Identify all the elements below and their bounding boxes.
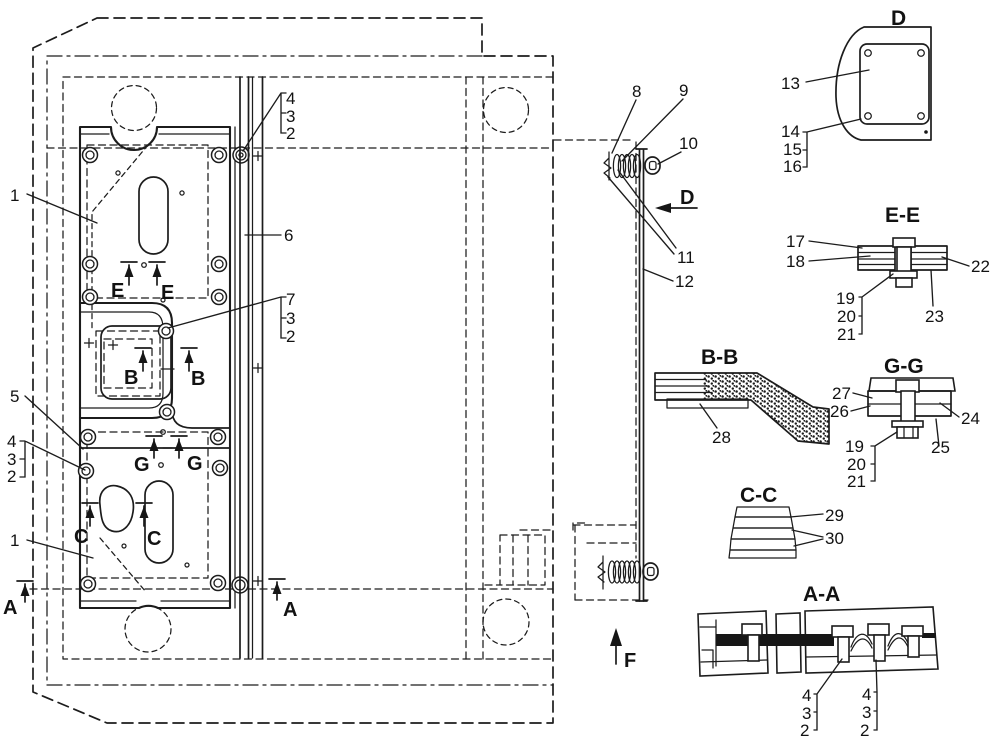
door-flap-and-rod xyxy=(554,140,647,601)
section-letter-C-right: C xyxy=(147,528,161,550)
section-cc-title: C-C xyxy=(740,484,777,507)
section-letter-G-right: G xyxy=(187,453,203,475)
section-marker-C xyxy=(82,503,152,526)
view-letter-F: F xyxy=(624,650,636,672)
callout-27: 27 xyxy=(832,384,851,403)
bracket-mid-right-2: 2 xyxy=(286,327,295,346)
section-ee-title: E-E xyxy=(885,204,920,227)
section-marker-G xyxy=(146,436,187,458)
callout-18: 18 xyxy=(786,252,805,271)
upper-spring xyxy=(604,152,660,180)
lower-spring xyxy=(598,556,658,589)
callout-9: 9 xyxy=(679,81,688,100)
bracket-top-right-2: 2 xyxy=(286,124,295,143)
callout-21b: 21 xyxy=(847,472,866,491)
section-letter-B-right: B xyxy=(191,368,205,390)
section-letter-A-left: A xyxy=(3,597,17,619)
callout-8: 8 xyxy=(632,82,641,101)
hatched-cutout xyxy=(100,486,134,532)
callout-25: 25 xyxy=(931,438,950,457)
section-letter-C-left: C xyxy=(74,526,88,548)
callout-24: 24 xyxy=(961,409,980,428)
section-letter-E-left: E xyxy=(111,280,124,302)
section-letter-G-left: G xyxy=(134,454,150,476)
callout-28: 28 xyxy=(712,428,731,447)
view-arrow-F xyxy=(610,628,622,664)
technical-drawing: 1 1 5 6 8 9 10 11 12 4 3 2 7 3 2 4 3 2 E… xyxy=(0,0,1000,745)
engineering-drawing-page: 1 1 5 6 8 9 10 11 12 4 3 2 7 3 2 4 3 2 E… xyxy=(0,0,1000,745)
callout-16: 16 xyxy=(783,157,802,176)
callout-26: 26 xyxy=(830,402,849,421)
callout-6: 6 xyxy=(284,226,293,245)
section-marker-B xyxy=(135,348,197,371)
callout-21: 21 xyxy=(837,325,856,344)
section-marker-E xyxy=(121,262,165,285)
section-bb-title: B-B xyxy=(701,346,738,369)
callout-5: 5 xyxy=(10,387,19,406)
callout-30: 30 xyxy=(825,529,844,548)
vertical-rail xyxy=(85,77,263,658)
aa-right-2: 2 xyxy=(860,721,869,740)
section-aa-title: A-A xyxy=(803,583,840,606)
section-letter-B-left: B xyxy=(124,367,138,389)
callout-20: 20 xyxy=(837,307,856,326)
aa-left-4: 4 xyxy=(802,686,811,705)
callout-13: 13 xyxy=(781,74,800,93)
section-letter-A-right: A xyxy=(283,599,297,621)
detail-d-title: D xyxy=(891,7,906,30)
lower-slot xyxy=(145,481,173,563)
bracket-mid-right-7: 7 xyxy=(286,290,295,309)
aa-right-4: 4 xyxy=(862,685,871,704)
callout-22: 22 xyxy=(971,257,990,276)
callout-29: 29 xyxy=(825,506,844,525)
section-view-CC: C-C 29 30 xyxy=(729,484,844,558)
section-view-BB: B-B 28 xyxy=(655,346,829,447)
callout-11: 11 xyxy=(677,248,695,267)
callout-17: 17 xyxy=(786,232,805,251)
section-view-AA: A-A 4 3 2 4 3 2 xyxy=(698,583,938,740)
callout-1-top: 1 xyxy=(10,186,19,205)
bracket-left-4: 4 xyxy=(7,432,16,451)
aa-left-2: 2 xyxy=(800,721,809,740)
callout-10: 10 xyxy=(679,134,698,153)
section-view-EE: E-E 17 18 22 23 19 20 21 xyxy=(786,204,990,344)
section-gg-title: G-G xyxy=(884,355,924,378)
callout-1-bottom: 1 xyxy=(10,531,19,550)
callout-12: 12 xyxy=(675,272,694,291)
callout-14: 14 xyxy=(781,122,800,141)
callout-23: 23 xyxy=(925,307,944,326)
bracket-mid-right-3: 3 xyxy=(286,309,295,328)
callout-19: 19 xyxy=(836,289,855,308)
bracket-top-right-4: 4 xyxy=(286,89,295,108)
spring-eyelet xyxy=(645,157,660,174)
bracket-left-2: 2 xyxy=(7,467,16,486)
inner-column-lines xyxy=(30,77,553,659)
section-letter-E-right: E xyxy=(161,282,174,304)
upper-slot xyxy=(139,177,168,254)
spring-eyelet xyxy=(643,563,658,580)
aa-right-3: 3 xyxy=(862,703,871,722)
detail-view-D: D 13 14 15 16 xyxy=(781,7,931,176)
section-view-GG: G-G 27 26 24 25 19 20 21 xyxy=(830,355,980,491)
view-letter-D: D xyxy=(680,187,694,209)
callout-19b: 19 xyxy=(845,437,864,456)
